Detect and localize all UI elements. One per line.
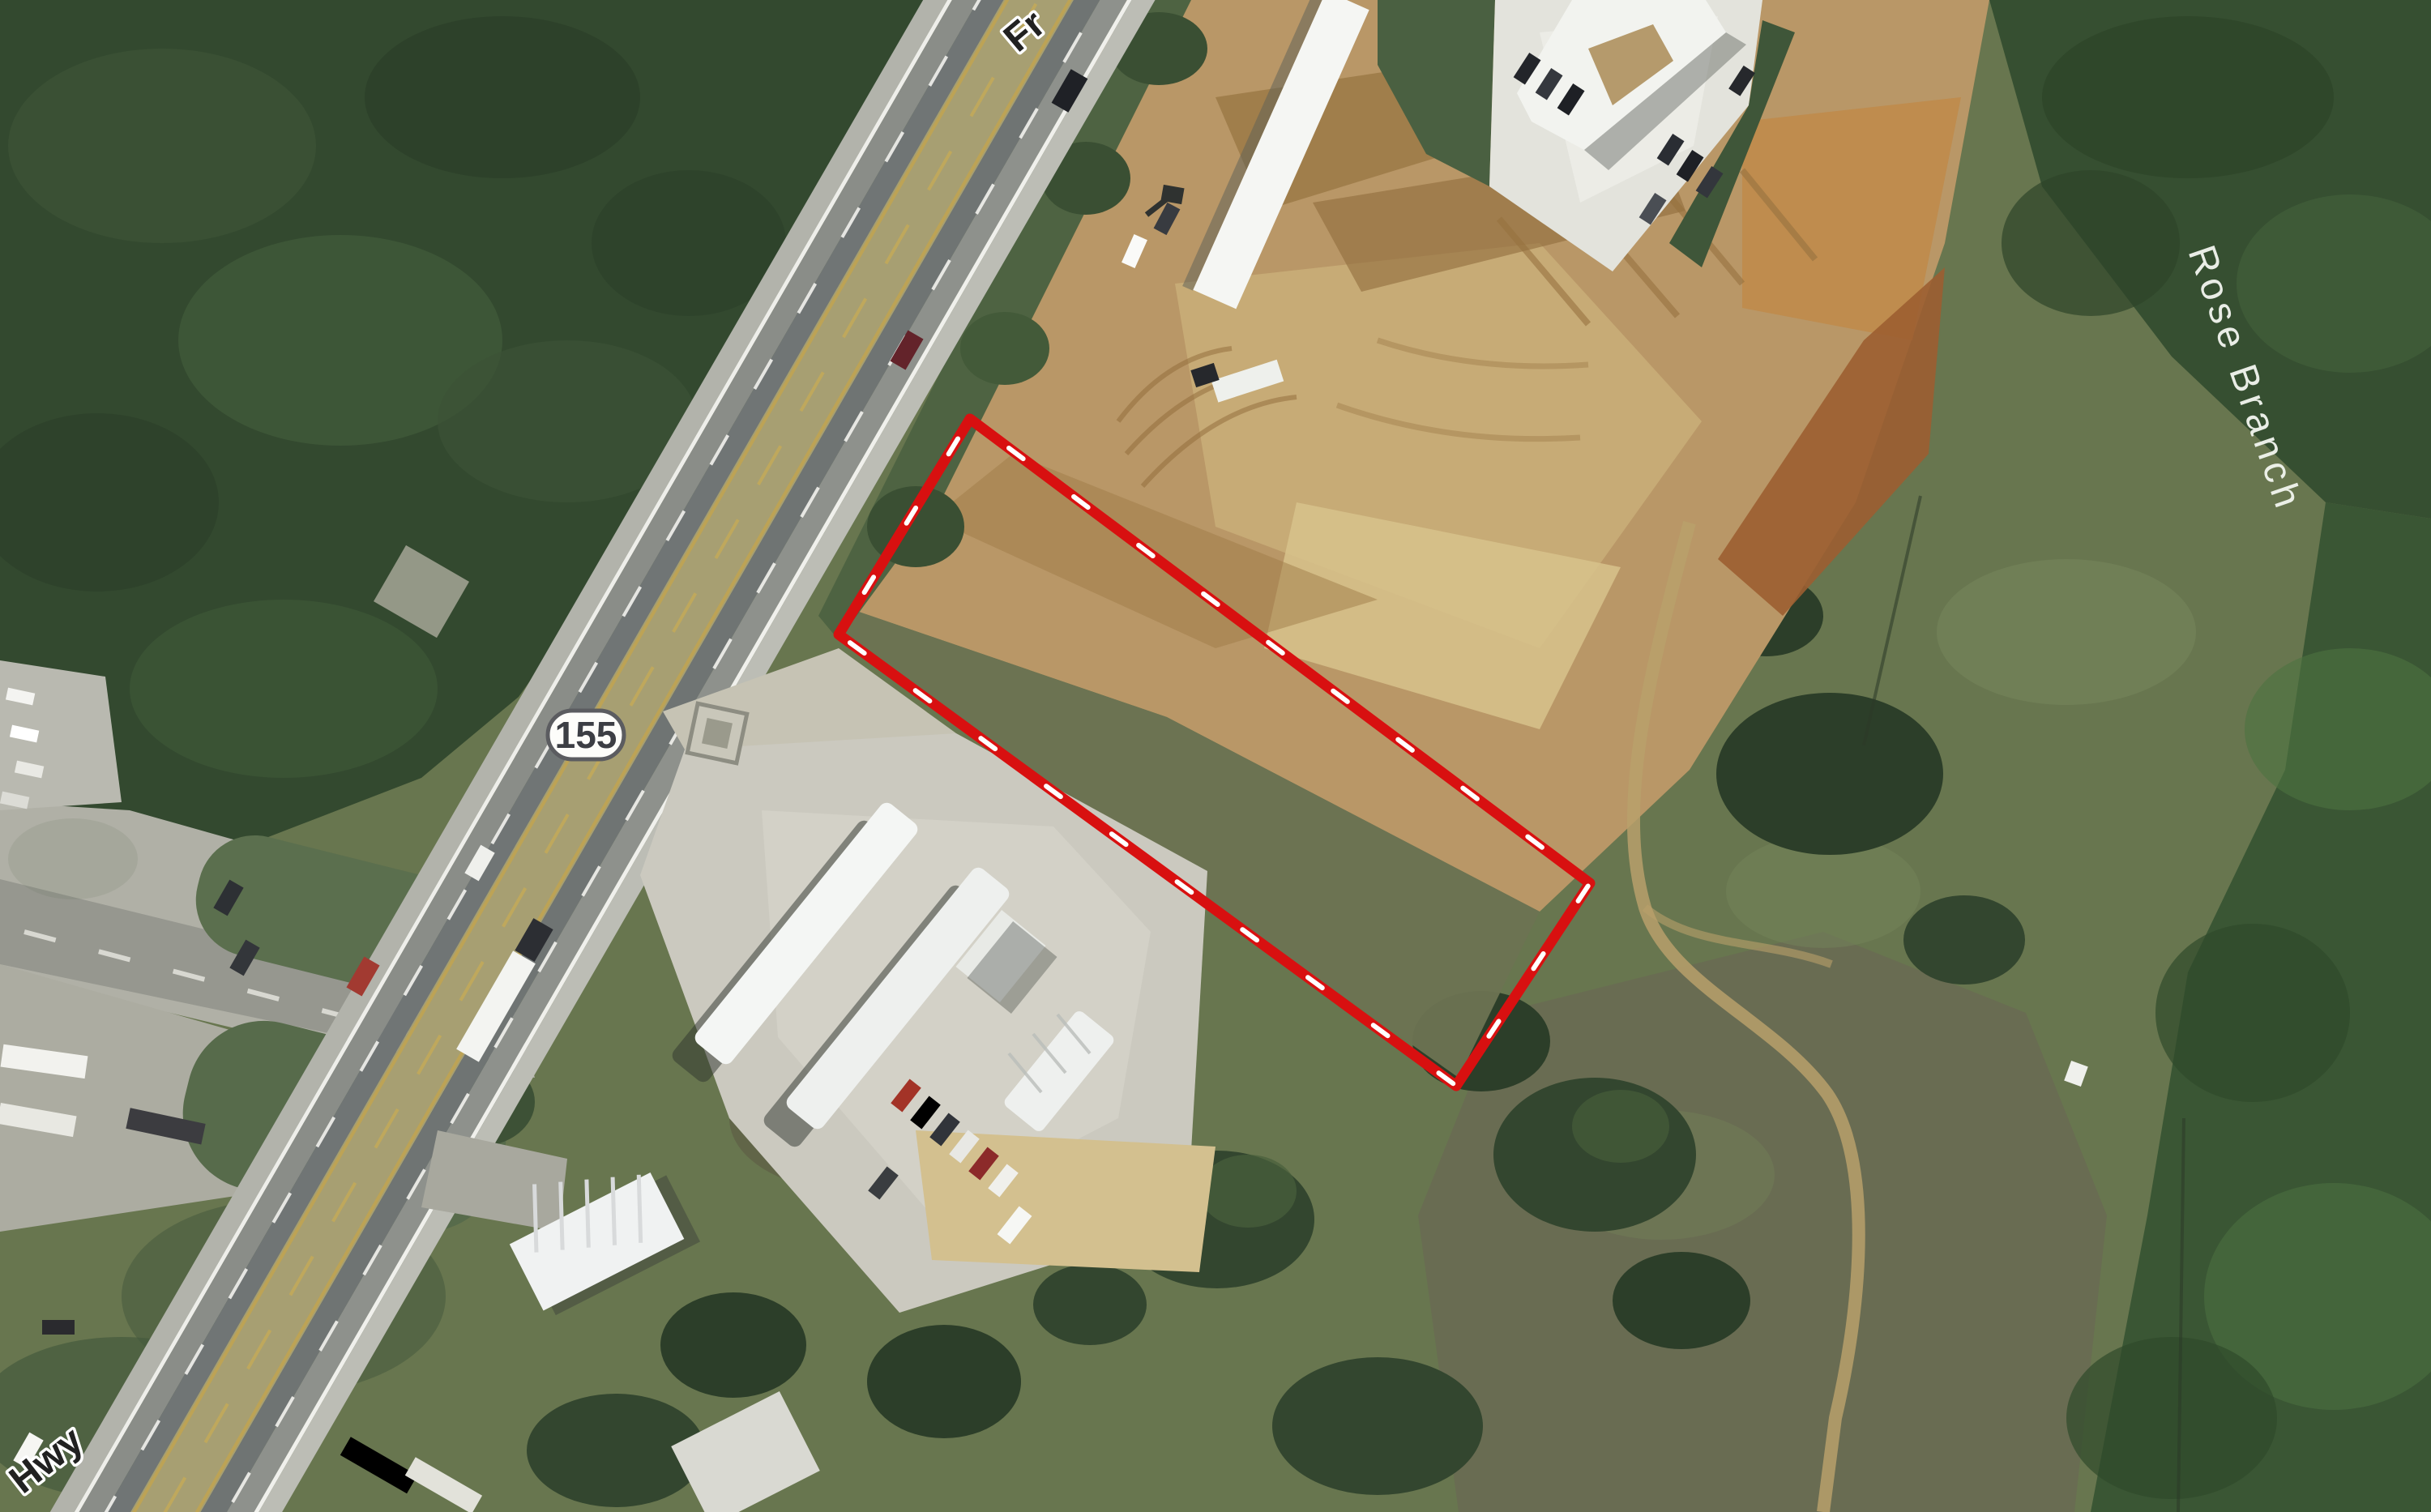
map-canvas[interactable]: 155 Fr Hwy Rose Branch xyxy=(0,0,2431,1512)
satellite-map[interactable]: 155 Fr Hwy Rose Branch xyxy=(0,0,2431,1512)
route-shield: 155 xyxy=(548,711,624,759)
left-roadside-parking xyxy=(0,660,122,810)
route-shield-number: 155 xyxy=(555,714,617,756)
